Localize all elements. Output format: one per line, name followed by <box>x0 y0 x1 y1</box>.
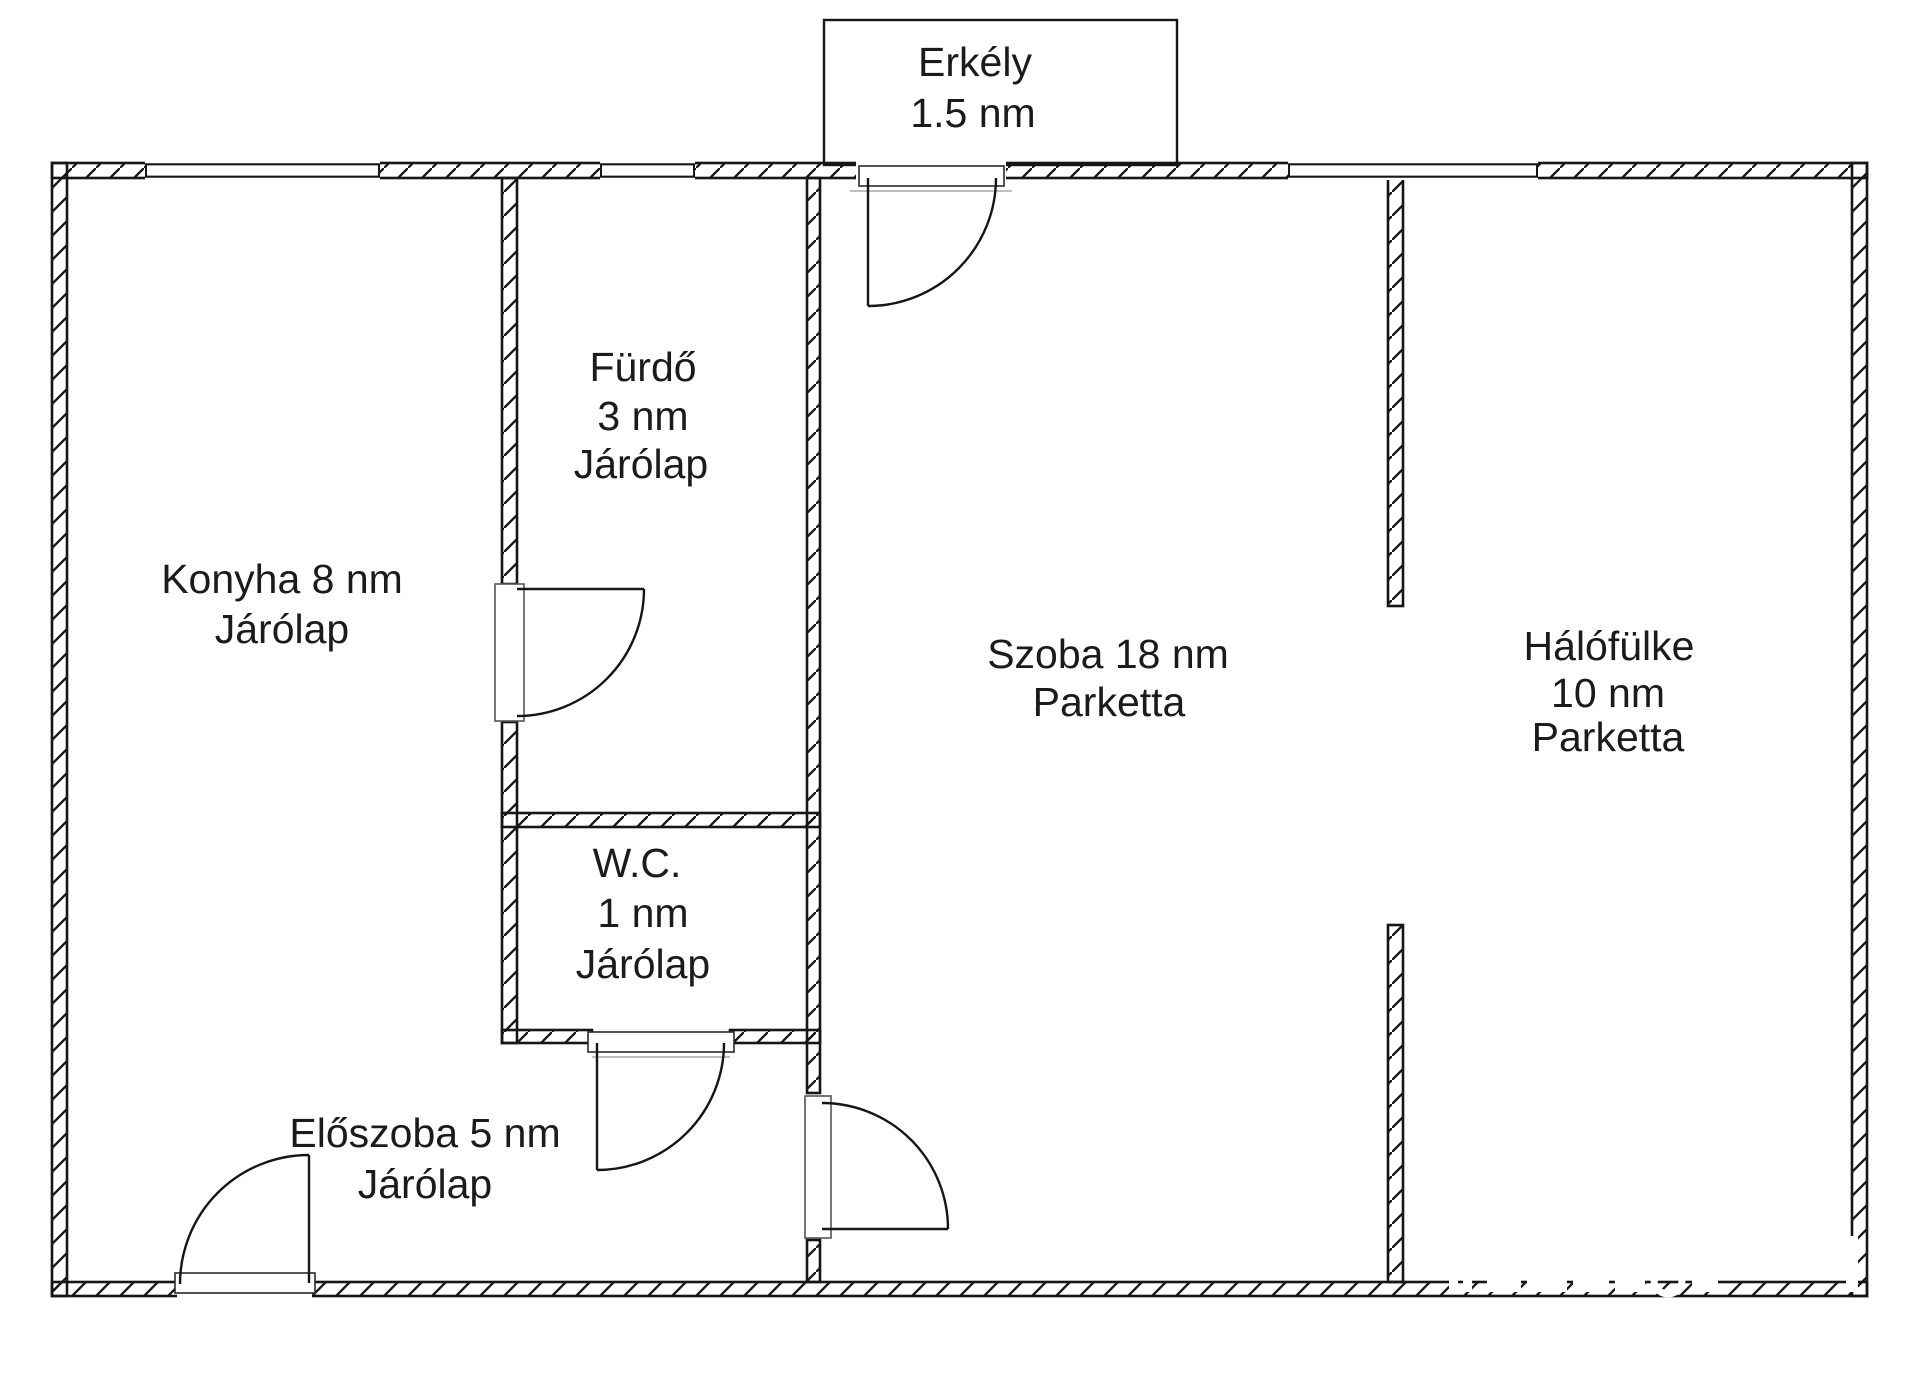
wall-kitchen-wc-lower <box>502 722 517 1043</box>
door-wc-swing-arc <box>597 1043 724 1170</box>
door-entry-swing-arc <box>180 1155 309 1284</box>
door-entry <box>175 1155 315 1298</box>
label-balcony-name: Erkély <box>918 39 1032 85</box>
label-bathroom-area: 3 nm <box>597 393 688 439</box>
wall-wc-bottom-left <box>502 1030 592 1043</box>
door-livingroom-frame <box>805 1096 831 1238</box>
watermark-shape <box>1846 1236 1858 1292</box>
floor-plan-canvas: Erkély 1.5 nm Konyha 8 nm Járólap Fürdő … <box>0 0 1920 1374</box>
label-alcove-floor: Parketta <box>1532 714 1685 760</box>
door-balcony-swing-arc <box>868 178 996 306</box>
wall-kitchen-bathroom-upper <box>502 178 517 584</box>
door-livingroom-swing-arc <box>822 1103 948 1229</box>
floor-plan-drawing: Erkély 1.5 nm Konyha 8 nm Járólap Fürdő … <box>0 0 1920 1374</box>
label-wc-area: 1 nm <box>597 890 688 936</box>
watermark-shape <box>1692 1262 1718 1292</box>
label-balcony-area: 1.5 nm <box>910 90 1035 136</box>
door-bathroom-swing-arc <box>517 589 644 716</box>
label-kitchen-floor: Járólap <box>215 606 349 652</box>
window-alcove <box>1288 161 1538 180</box>
window-kitchen <box>145 161 380 180</box>
label-hallway-name: Előszoba 5 nm <box>289 1110 560 1156</box>
label-kitchen-name: Konyha 8 nm <box>161 556 403 602</box>
door-wc-threshold <box>588 1032 734 1052</box>
door-balcony-sill <box>859 166 1004 186</box>
label-wc-name: W.C. <box>593 840 682 886</box>
wall-livingroom-alcove-upper <box>1388 178 1403 606</box>
watermark-shape <box>1463 1256 1472 1292</box>
watermark-shape <box>1573 1262 1609 1292</box>
door-livingroom <box>805 1096 948 1238</box>
window-bathroom <box>600 161 695 180</box>
label-wc-floor: Járólap <box>576 941 710 987</box>
watermark-shape <box>1615 1262 1645 1292</box>
wall-bathroom-livingroom <box>807 178 820 1093</box>
door-wc <box>588 1032 734 1170</box>
room-labels: Erkély 1.5 nm Konyha 8 nm Járólap Fürdő … <box>161 39 1694 1207</box>
door-bathroom-frame <box>495 584 524 721</box>
label-hallway-floor: Járólap <box>358 1161 492 1207</box>
wall-livingroom-alcove-lower <box>1388 925 1403 1282</box>
label-bathroom-name: Fürdő <box>589 344 696 390</box>
door-balcony <box>850 160 1012 306</box>
label-alcove-name: Hálófülke <box>1524 623 1695 669</box>
door-bathroom <box>495 584 644 721</box>
wall-right <box>1852 163 1867 1296</box>
label-livingroom-name: Szoba 18 nm <box>987 631 1229 677</box>
label-alcove-area: 10 nm <box>1551 670 1665 716</box>
wall-bathroom-wc-divider <box>502 813 820 827</box>
wall-wc-bottom-right <box>730 1030 820 1043</box>
label-bathroom-floor: Járólap <box>574 441 708 487</box>
wall-left <box>52 163 67 1296</box>
label-livingroom-floor: Parketta <box>1033 679 1186 725</box>
wall-hall-livingroom-stub <box>807 1240 820 1282</box>
watermark-shape <box>1527 1262 1567 1292</box>
watermark-shape <box>1449 1256 1458 1292</box>
watermark-shape <box>1487 1262 1521 1292</box>
door-entry-threshold <box>175 1273 315 1293</box>
